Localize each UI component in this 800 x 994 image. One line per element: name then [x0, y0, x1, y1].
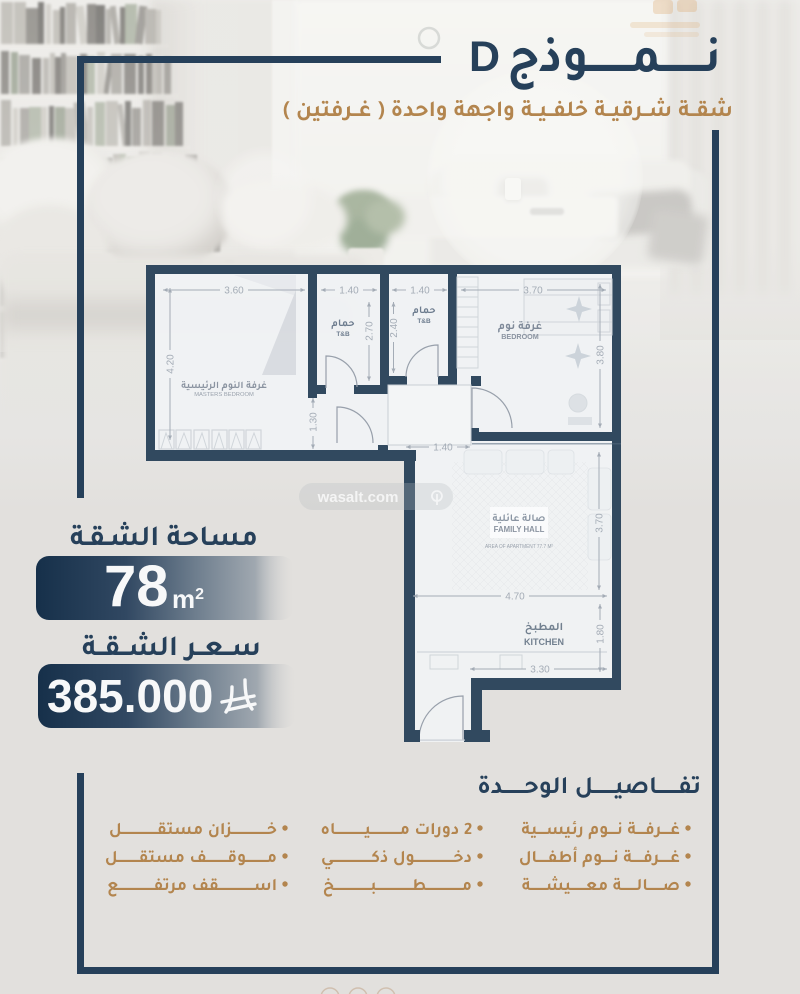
svg-text:78: 78 — [104, 554, 169, 619]
svg-text:wasalt.com: wasalt.com — [317, 489, 399, 506]
svg-text:MASTERS BEDROOM: MASTERS BEDROOM — [194, 392, 254, 398]
svg-text:4.20: 4.20 — [166, 354, 177, 374]
svg-text:T&B: T&B — [417, 318, 431, 325]
svg-text:FAMILY HALL: FAMILY HALL — [494, 525, 545, 534]
svg-text:3.70: 3.70 — [595, 513, 606, 533]
svg-text:2.70: 2.70 — [365, 321, 376, 341]
svg-text:AREA OF APARTMENT 77.7 M²: AREA OF APARTMENT 77.7 M² — [485, 544, 553, 550]
svg-text:1.40: 1.40 — [410, 286, 430, 297]
svg-text:2.40: 2.40 — [389, 318, 400, 338]
svg-text:D: D — [469, 33, 500, 81]
svg-text:T&B: T&B — [336, 331, 350, 338]
svg-text:3.70: 3.70 — [523, 286, 543, 297]
svg-text:1.80: 1.80 — [596, 624, 607, 644]
svg-text:3.60: 3.60 — [224, 286, 244, 297]
svg-text:BEDROOM: BEDROOM — [501, 332, 539, 341]
svg-text:1.40: 1.40 — [433, 443, 453, 454]
svg-text:3.30: 3.30 — [530, 665, 550, 676]
svg-text:3.80: 3.80 — [596, 345, 607, 365]
svg-text:1.40: 1.40 — [339, 286, 359, 297]
svg-text:385.000: 385.000 — [47, 670, 213, 722]
svg-text:1.30: 1.30 — [309, 412, 320, 432]
svg-text:4.70: 4.70 — [505, 592, 525, 603]
svg-text:KITCHEN: KITCHEN — [524, 637, 564, 648]
